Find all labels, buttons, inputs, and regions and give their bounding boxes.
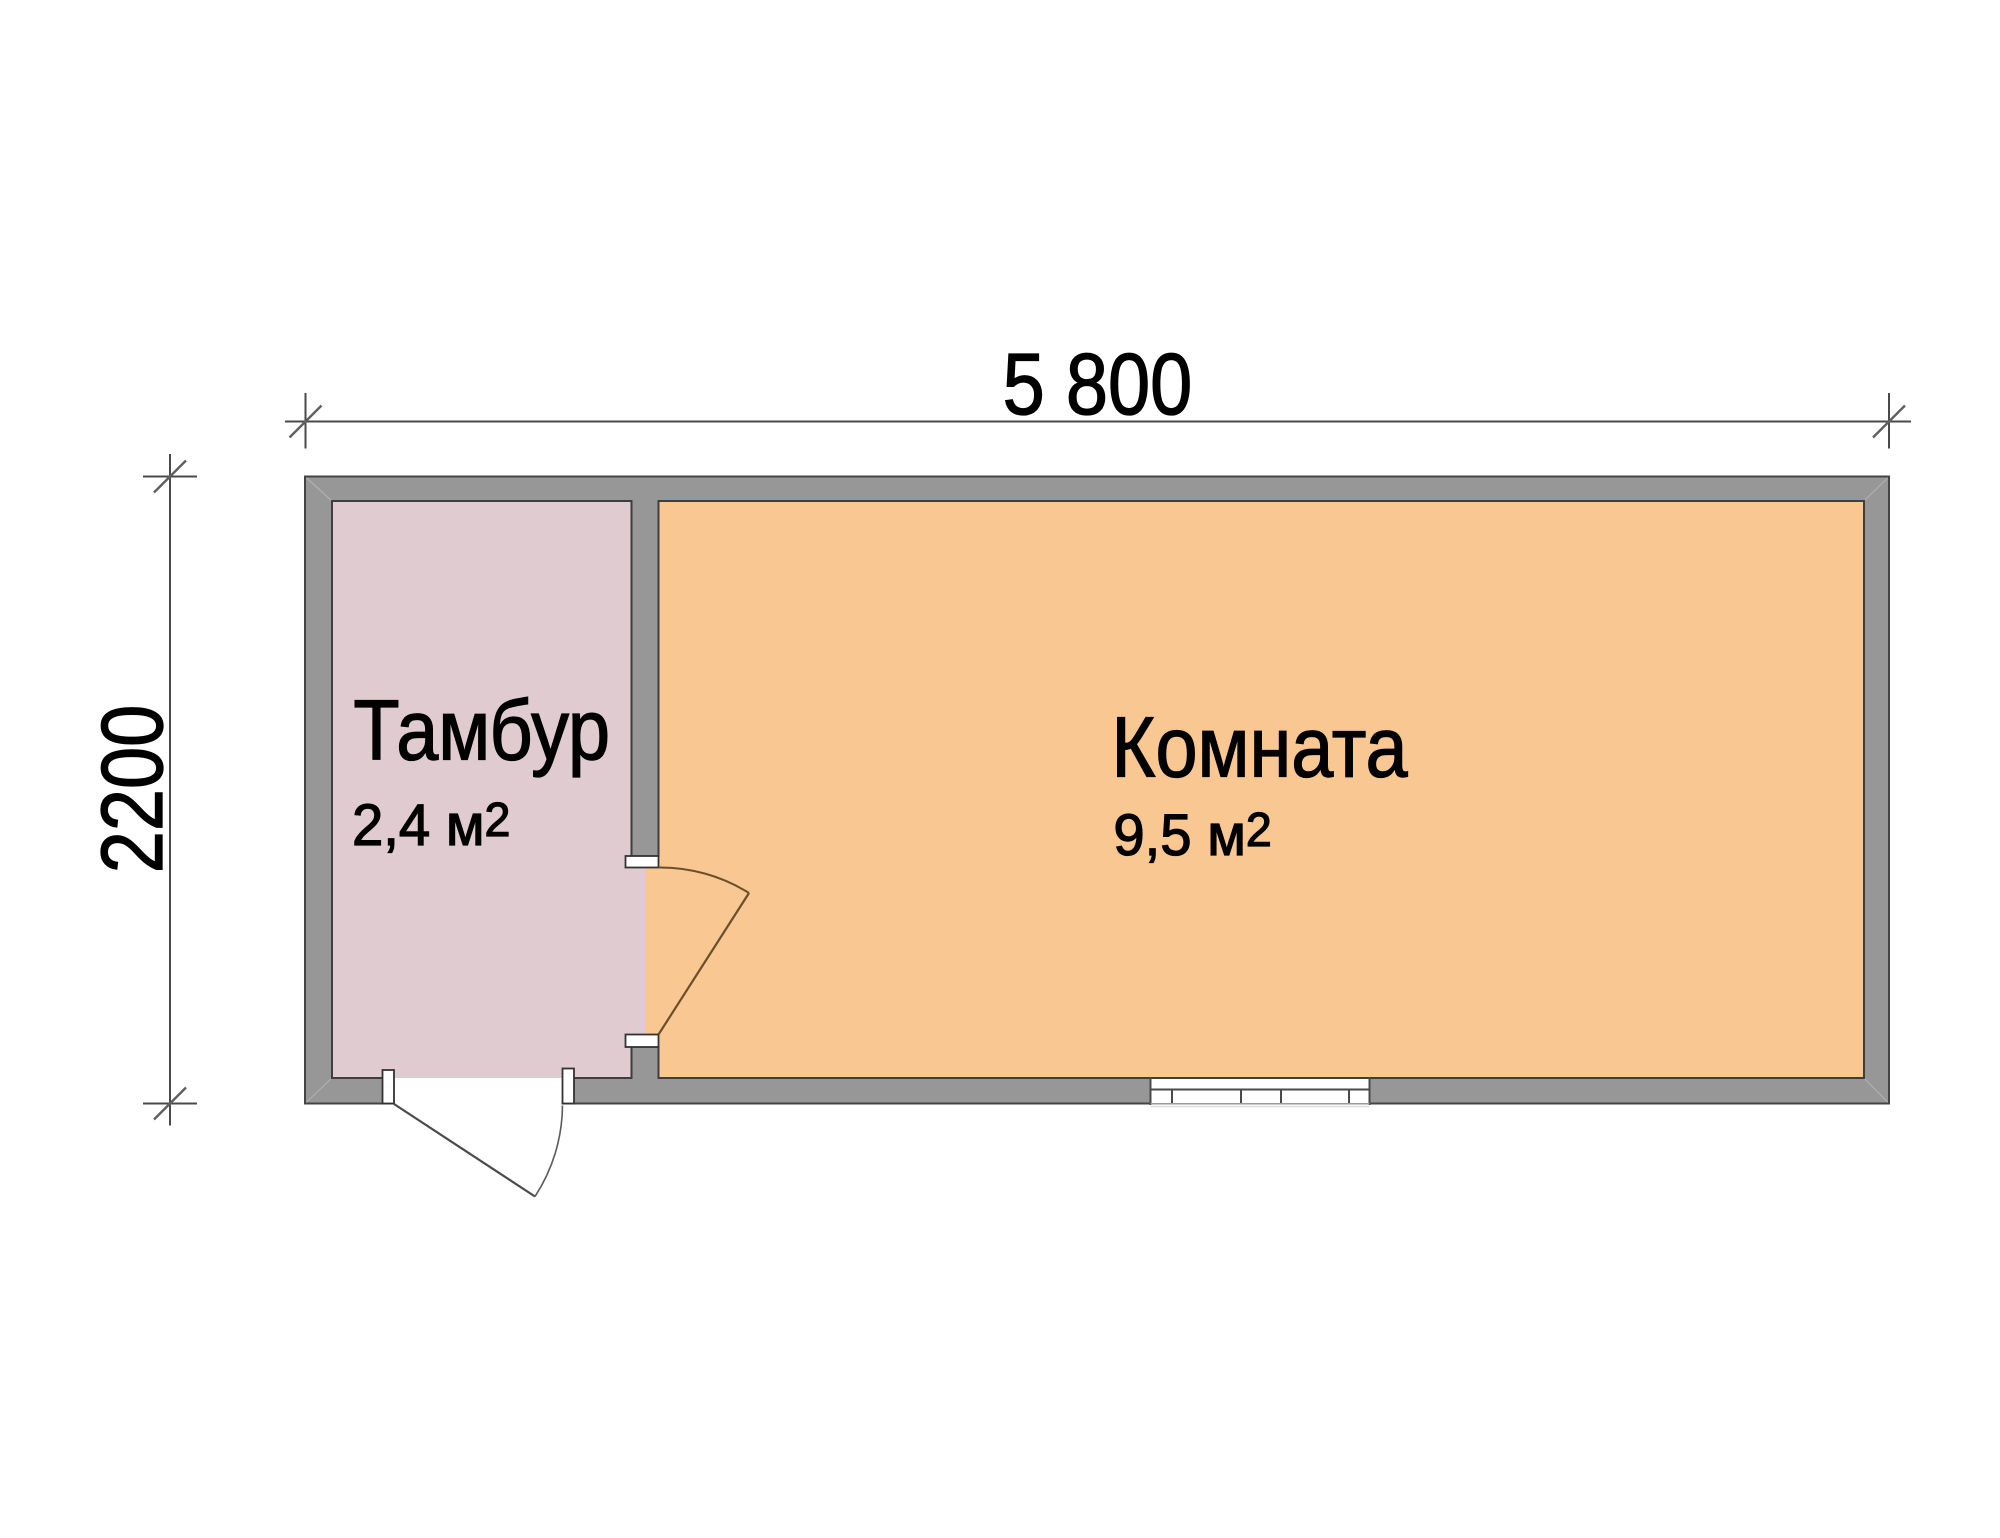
svg-text:Тамбур: Тамбур — [353, 683, 610, 778]
svg-text:2200: 2200 — [84, 705, 181, 874]
svg-text:Комната: Комната — [1111, 700, 1407, 795]
svg-text:5 800: 5 800 — [1003, 336, 1193, 433]
